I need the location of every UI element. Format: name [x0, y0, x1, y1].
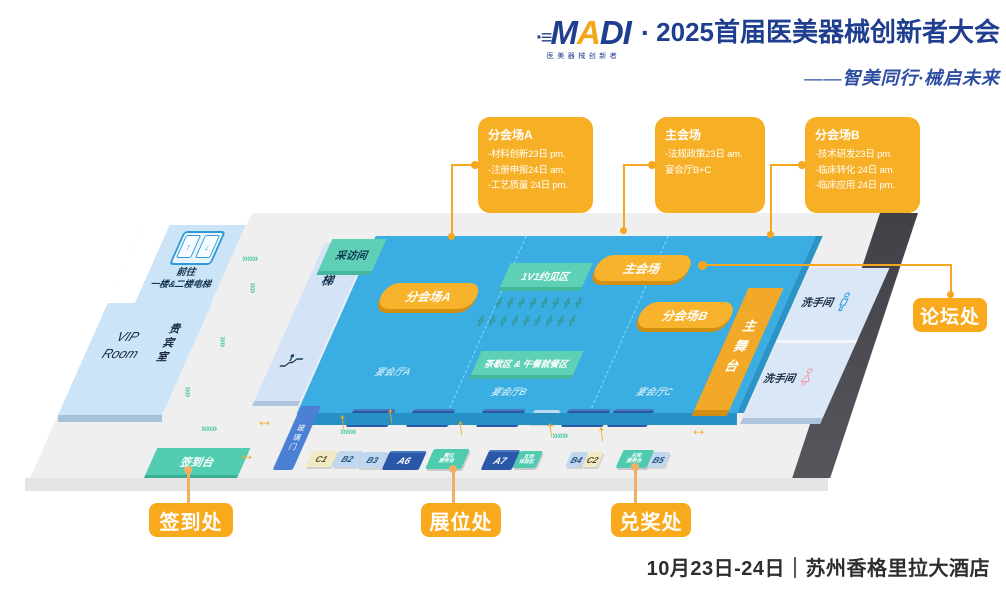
seat-icon: ╬ — [516, 300, 525, 309]
callout-title: 分会场A — [488, 126, 585, 143]
connector-line — [703, 264, 952, 266]
connector-dot — [471, 161, 479, 169]
connector-dot — [620, 227, 627, 234]
header: ·≡MADI 医美器械创新者 · 2025首届医美器械创新者大会 ——智美同行·… — [478, 16, 1000, 90]
elevator-note-line1: 前往 — [140, 267, 233, 279]
seat-icon: ╬ — [493, 300, 502, 309]
booth-service-exhibit: 展位 服务台 — [425, 449, 470, 469]
restroom-male: 洗手间 — [798, 292, 853, 312]
sub-venue-b-pill[interactable]: 分会场B — [634, 302, 738, 328]
seat-icon: ╬ — [528, 300, 537, 309]
callout-sub-venue-a: 分会场A -材料创新23日 pm. -注册申报24日 am. -工艺质量 24日… — [478, 117, 593, 213]
flow-arrow-both: ↔ — [256, 412, 273, 429]
title-separator: · — [641, 16, 650, 50]
seat-icon: ╬ — [562, 300, 571, 309]
callout-line: -注册申报24日 am. — [488, 163, 585, 179]
vip-room-label-en: VIP Room — [87, 329, 160, 363]
connector-dot — [947, 291, 954, 298]
elevator-icon: ↑ ↓ — [169, 231, 226, 265]
direction-chevrons-down: »» — [217, 336, 228, 346]
logo-subtitle: 医美器械创新者 — [536, 51, 631, 61]
vip-front-face — [58, 415, 162, 422]
tagline: ——智美同行·械启未来 — [478, 64, 1000, 90]
page-title: 2025首届医美器械创新者大会 — [656, 16, 1000, 50]
callout-main-venue: 主会场 -法规政策23日 am. 宴会厅B+C — [655, 117, 765, 213]
main-venue-pill[interactable]: 主会场 — [590, 255, 696, 281]
direction-chevrons: »»» — [552, 431, 567, 442]
forum-button[interactable]: 论坛处 — [913, 298, 987, 332]
connector-dot — [631, 463, 639, 471]
flow-arrow-both: ↔ — [690, 421, 707, 438]
callout-line: -工艺质量 24日 pm. — [488, 178, 585, 194]
logo-dots-icon: ·≡ — [536, 27, 550, 49]
callout-line: -临床应用 24日 pm. — [815, 178, 912, 194]
elevator-note: 前往 一楼&二楼电梯 — [135, 267, 233, 290]
seat-icon: ╬ — [487, 318, 496, 327]
direction-chevrons: »»» — [201, 424, 216, 435]
connector-dot — [648, 161, 656, 169]
connector-line — [770, 164, 772, 234]
logo-di: DI — [600, 14, 631, 51]
connector-dot — [184, 466, 192, 474]
seat-icon: ╬ — [555, 318, 564, 327]
seat-icon: ╬ — [567, 318, 576, 327]
service-booth-line: 体验区 — [518, 460, 535, 465]
venue-map-poster: ·≡MADI 医美器械创新者 · 2025首届医美器械创新者大会 ——智美同行·… — [0, 0, 1006, 600]
vip-room: VIP Room 贵宾室 — [58, 303, 212, 415]
callout-line: -法规政策23日 am. — [665, 147, 757, 163]
callout-line: -技术研发23日 pm. — [815, 147, 912, 163]
floor-bottom-face — [25, 478, 828, 491]
logo-m: M — [550, 14, 577, 51]
callout-line: 宴会厅B+C — [665, 163, 757, 179]
date-venue: 10月23日-24日｜苏州香格里拉大酒店 — [647, 552, 990, 581]
connector-line — [623, 164, 625, 230]
seat-icon: ╬ — [509, 318, 518, 327]
callout-title: 分会场B — [815, 126, 912, 143]
signin-button[interactable]: 签到处 — [149, 503, 233, 537]
restroom-label: 洗手间 — [799, 295, 837, 310]
restroom-divider — [776, 340, 857, 343]
restroom-female: 洗手间 — [760, 368, 816, 388]
seat-icon: ╬ — [498, 318, 507, 327]
banquet-hall-a-label: 宴会厅A — [373, 364, 414, 378]
connector-dot — [698, 261, 707, 270]
prize-button[interactable]: 兑奖处 — [611, 503, 691, 537]
floor-notch — [143, 213, 252, 225]
seat-row: ╬╬╬╬╬╬╬╬ — [493, 300, 582, 309]
restroom-label: 洗手间 — [761, 371, 799, 386]
banquet-hall-b-label: 宴会厅B — [489, 384, 530, 398]
callout-sub-venue-b: 分会场B -技术研发23日 pm. -临床转化 24日 am. -临床应用 24… — [805, 117, 920, 213]
seat-icon: ╬ — [539, 300, 548, 309]
hall-front-face — [297, 413, 737, 425]
direction-chevrons: »»» — [242, 254, 257, 265]
signin-desk: 签到台 — [145, 448, 250, 475]
connector-line — [451, 164, 453, 236]
connector-dot — [767, 231, 774, 238]
service-booth-line: 服务台 — [438, 459, 455, 464]
seat-icon: ╬ — [505, 300, 514, 309]
connector-dot — [798, 161, 806, 169]
direction-chevrons: »»» — [340, 427, 355, 438]
booths-button[interactable]: 展位处 — [421, 503, 501, 537]
seat-icon: ╬ — [550, 300, 559, 309]
elevator-note-line2: 一楼&二楼电梯 — [135, 279, 228, 290]
direction-chevrons-down: »» — [247, 282, 258, 292]
connector-dot — [449, 465, 457, 473]
one-on-one-meeting-zone: 1V1约见区 — [500, 263, 593, 287]
connector-line — [187, 471, 190, 504]
connector-line — [452, 470, 455, 504]
seat-icon: ╬ — [521, 318, 530, 327]
madi-logo: ·≡MADI 医美器械创新者 — [536, 16, 631, 61]
connector-line — [634, 468, 637, 504]
banquet-hall-c-label: 宴会厅C — [634, 384, 676, 398]
floor-plan: ↑ ↓ 前往 一楼&二楼电梯 VIP Room 贵宾室 扶梯 — [30, 213, 918, 478]
connector-dot — [448, 233, 455, 240]
callout-line: -临床转化 24日 am. — [815, 163, 912, 179]
escalator-icon — [277, 351, 309, 369]
booth-a6: A6 — [382, 451, 427, 470]
tea-lunch-zone: 茶歇区 & 午餐就餐区 — [471, 351, 584, 375]
seat-icon: ╬ — [532, 318, 541, 327]
direction-chevrons-down: »» — [182, 386, 193, 396]
seat-icon: ╬ — [573, 300, 582, 309]
glass-door-label: 玻璃门 — [285, 424, 309, 453]
flow-arrow-both: ↔ — [238, 446, 255, 463]
seat-icon: ╬ — [475, 318, 484, 327]
sub-venue-a-pill[interactable]: 分会场A — [375, 283, 483, 309]
callout-line: -材料创新23日 pm. — [488, 147, 585, 163]
logo-a: A — [577, 14, 600, 51]
seat-row: ╬╬╬╬╬╬╬╬╬ — [475, 318, 576, 327]
callout-title: 主会场 — [665, 126, 757, 143]
seat-icon: ╬ — [544, 318, 553, 327]
